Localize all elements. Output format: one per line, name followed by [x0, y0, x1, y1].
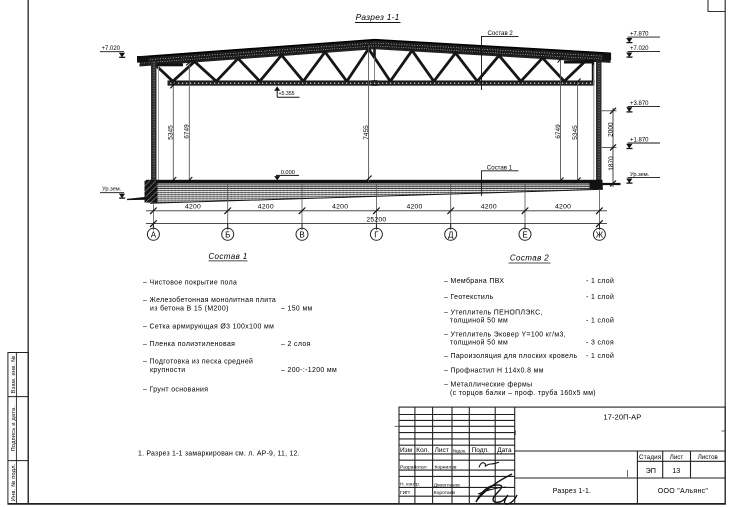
svg-text:№док.: №док.	[453, 448, 466, 453]
svg-text:Стадия: Стадия	[639, 454, 661, 461]
svg-text:5345: 5345	[168, 125, 175, 140]
svg-text:1870: 1870	[608, 156, 615, 171]
svg-text:Ур.зем.: Ур.зем.	[630, 172, 650, 178]
svg-text:– Сетка армирующая Ø3 100х100: – Сетка армирующая Ø3 100х100 мм	[143, 323, 274, 330]
svg-text:Инв. № подл.: Инв. № подл.	[11, 463, 17, 501]
svg-text:– Мембрана ПВХ: – Мембрана ПВХ	[444, 277, 504, 285]
svg-text:– Грунт основания: – Грунт основания	[143, 386, 208, 393]
svg-text:+7.870: +7.870	[630, 31, 649, 37]
svg-text:5345: 5345	[572, 125, 579, 140]
svg-text:4200: 4200	[332, 204, 348, 211]
svg-text:крупности: крупности	[150, 367, 185, 374]
svg-text:В: В	[299, 230, 304, 239]
svg-text:– Геотекстиль: – Геотекстиль	[444, 294, 494, 301]
svg-text:– Утеплитель Эковер Y=100 кг/м: – Утеплитель Эковер Y=100 кг/м3,	[444, 332, 566, 339]
svg-text:Дата: Дата	[497, 447, 512, 454]
svg-text:Разработал: Разработал	[400, 464, 427, 470]
svg-text:Разрез 1-1: Разрез 1-1	[356, 12, 400, 22]
svg-text:Подп.: Подп.	[472, 447, 489, 454]
svg-text:1. Разрез 1-1 замаркирован см.: 1. Разрез 1-1 замаркирован см. л. АР-9, …	[138, 450, 300, 457]
svg-text:– Профнастил Н 114х0.8 мм: – Профнастил Н 114х0.8 мм	[444, 367, 544, 374]
svg-text:13: 13	[672, 466, 680, 475]
svg-text:Корнилов: Корнилов	[435, 464, 457, 470]
svg-text:2000: 2000	[607, 122, 614, 137]
svg-text:- 1 слой: - 1 слой	[586, 316, 614, 324]
svg-text:17-20П-АР: 17-20П-АР	[603, 412, 641, 421]
svg-text:4200: 4200	[258, 204, 274, 211]
svg-text:Е: Е	[522, 230, 527, 239]
svg-text:- 1 слой: - 1 слой	[586, 293, 614, 301]
svg-text:Листов: Листов	[698, 454, 719, 461]
svg-text:Состав 1: Состав 1	[208, 252, 247, 261]
svg-text:Двоеглазов: Двоеглазов	[434, 483, 460, 489]
svg-text:25200: 25200	[366, 217, 386, 224]
svg-text:Лист: Лист	[670, 454, 684, 461]
svg-text:6749: 6749	[555, 124, 562, 139]
svg-text:из бетона В 15 (М200): из бетона В 15 (М200)	[150, 304, 229, 312]
svg-text:Состав 2: Состав 2	[510, 253, 549, 262]
svg-text:+1.870: +1.870	[630, 137, 649, 143]
svg-text:– 150 мм: – 150 мм	[281, 305, 313, 312]
svg-text:- 1 слой: - 1 слой	[586, 352, 614, 360]
svg-text:Изм: Изм	[400, 447, 413, 454]
svg-text:Состав 2: Состав 2	[488, 30, 514, 37]
svg-text:толщиной 50 мм: толщиной 50 мм	[450, 316, 508, 324]
svg-text:– Чистовое покрытие пола: – Чистовое покрытие пола	[143, 279, 237, 286]
svg-text:– 200-:-1200 мм: – 200-:-1200 мм	[281, 367, 337, 374]
svg-text:Разрез 1-1.: Разрез 1-1.	[553, 488, 592, 495]
svg-text:– Металлические фермы: – Металлические фермы	[444, 382, 532, 389]
svg-text:Ур.зем.: Ур.зем.	[102, 186, 122, 192]
svg-text:4200: 4200	[185, 204, 201, 211]
svg-text:4200: 4200	[481, 204, 497, 211]
svg-text:– Утеплитель ПЕНОПЛЭКС,: – Утеплитель ПЕНОПЛЭКС,	[444, 310, 543, 317]
svg-text:– Железобетонная монолитная п: – Железобетонная монолитная плита	[143, 296, 276, 304]
svg-text:– Пароизоляция для плоских кро: – Пароизоляция для плоских кровель	[444, 353, 577, 360]
svg-text:ООО "Альянс": ООО "Альянс"	[658, 488, 709, 495]
svg-text:толщиной 50 мм: толщиной 50 мм	[450, 339, 508, 347]
svg-text:+7.020: +7.020	[630, 46, 649, 52]
svg-text:4200: 4200	[406, 204, 422, 211]
svg-text:– Пленка полиэтиленовая: – Пленка полиэтиленовая	[143, 341, 235, 348]
svg-text:Н. контр.: Н. контр.	[400, 482, 420, 488]
svg-text:Коротаев: Коротаев	[434, 490, 456, 496]
svg-text:Кол.: Кол.	[416, 447, 429, 454]
svg-text:Г: Г	[374, 230, 379, 239]
svg-text:7455: 7455	[363, 125, 370, 140]
svg-text:Ж: Ж	[596, 230, 604, 239]
svg-text:+3.870: +3.870	[630, 101, 649, 107]
svg-text:ЭП: ЭП	[646, 466, 656, 475]
svg-text:Взам. инв. №: Взам. инв. №	[11, 356, 17, 394]
svg-text:– Подготовка из песка средней: – Подготовка из песка средней	[143, 358, 253, 366]
svg-text:Подпись и дата.: Подпись и дата.	[11, 406, 17, 452]
svg-text:6749: 6749	[184, 124, 191, 139]
svg-text:4200: 4200	[555, 204, 571, 211]
svg-text:Б: Б	[225, 230, 230, 239]
svg-text:(с торцов балки – проф. труба: (с торцов балки – проф. труба 160х5 мм)	[450, 389, 596, 397]
svg-text:+5.355: +5.355	[279, 91, 295, 97]
svg-text:ГИП: ГИП	[400, 490, 410, 496]
svg-text:А: А	[151, 230, 157, 239]
svg-text:Лист: Лист	[435, 447, 449, 454]
svg-text:– 2 слоя: – 2 слоя	[281, 341, 311, 348]
svg-text:- 3 слоя: - 3 слоя	[586, 340, 614, 347]
svg-text:Д: Д	[448, 230, 454, 239]
svg-text:- 1 слой: - 1 слой	[586, 277, 614, 285]
